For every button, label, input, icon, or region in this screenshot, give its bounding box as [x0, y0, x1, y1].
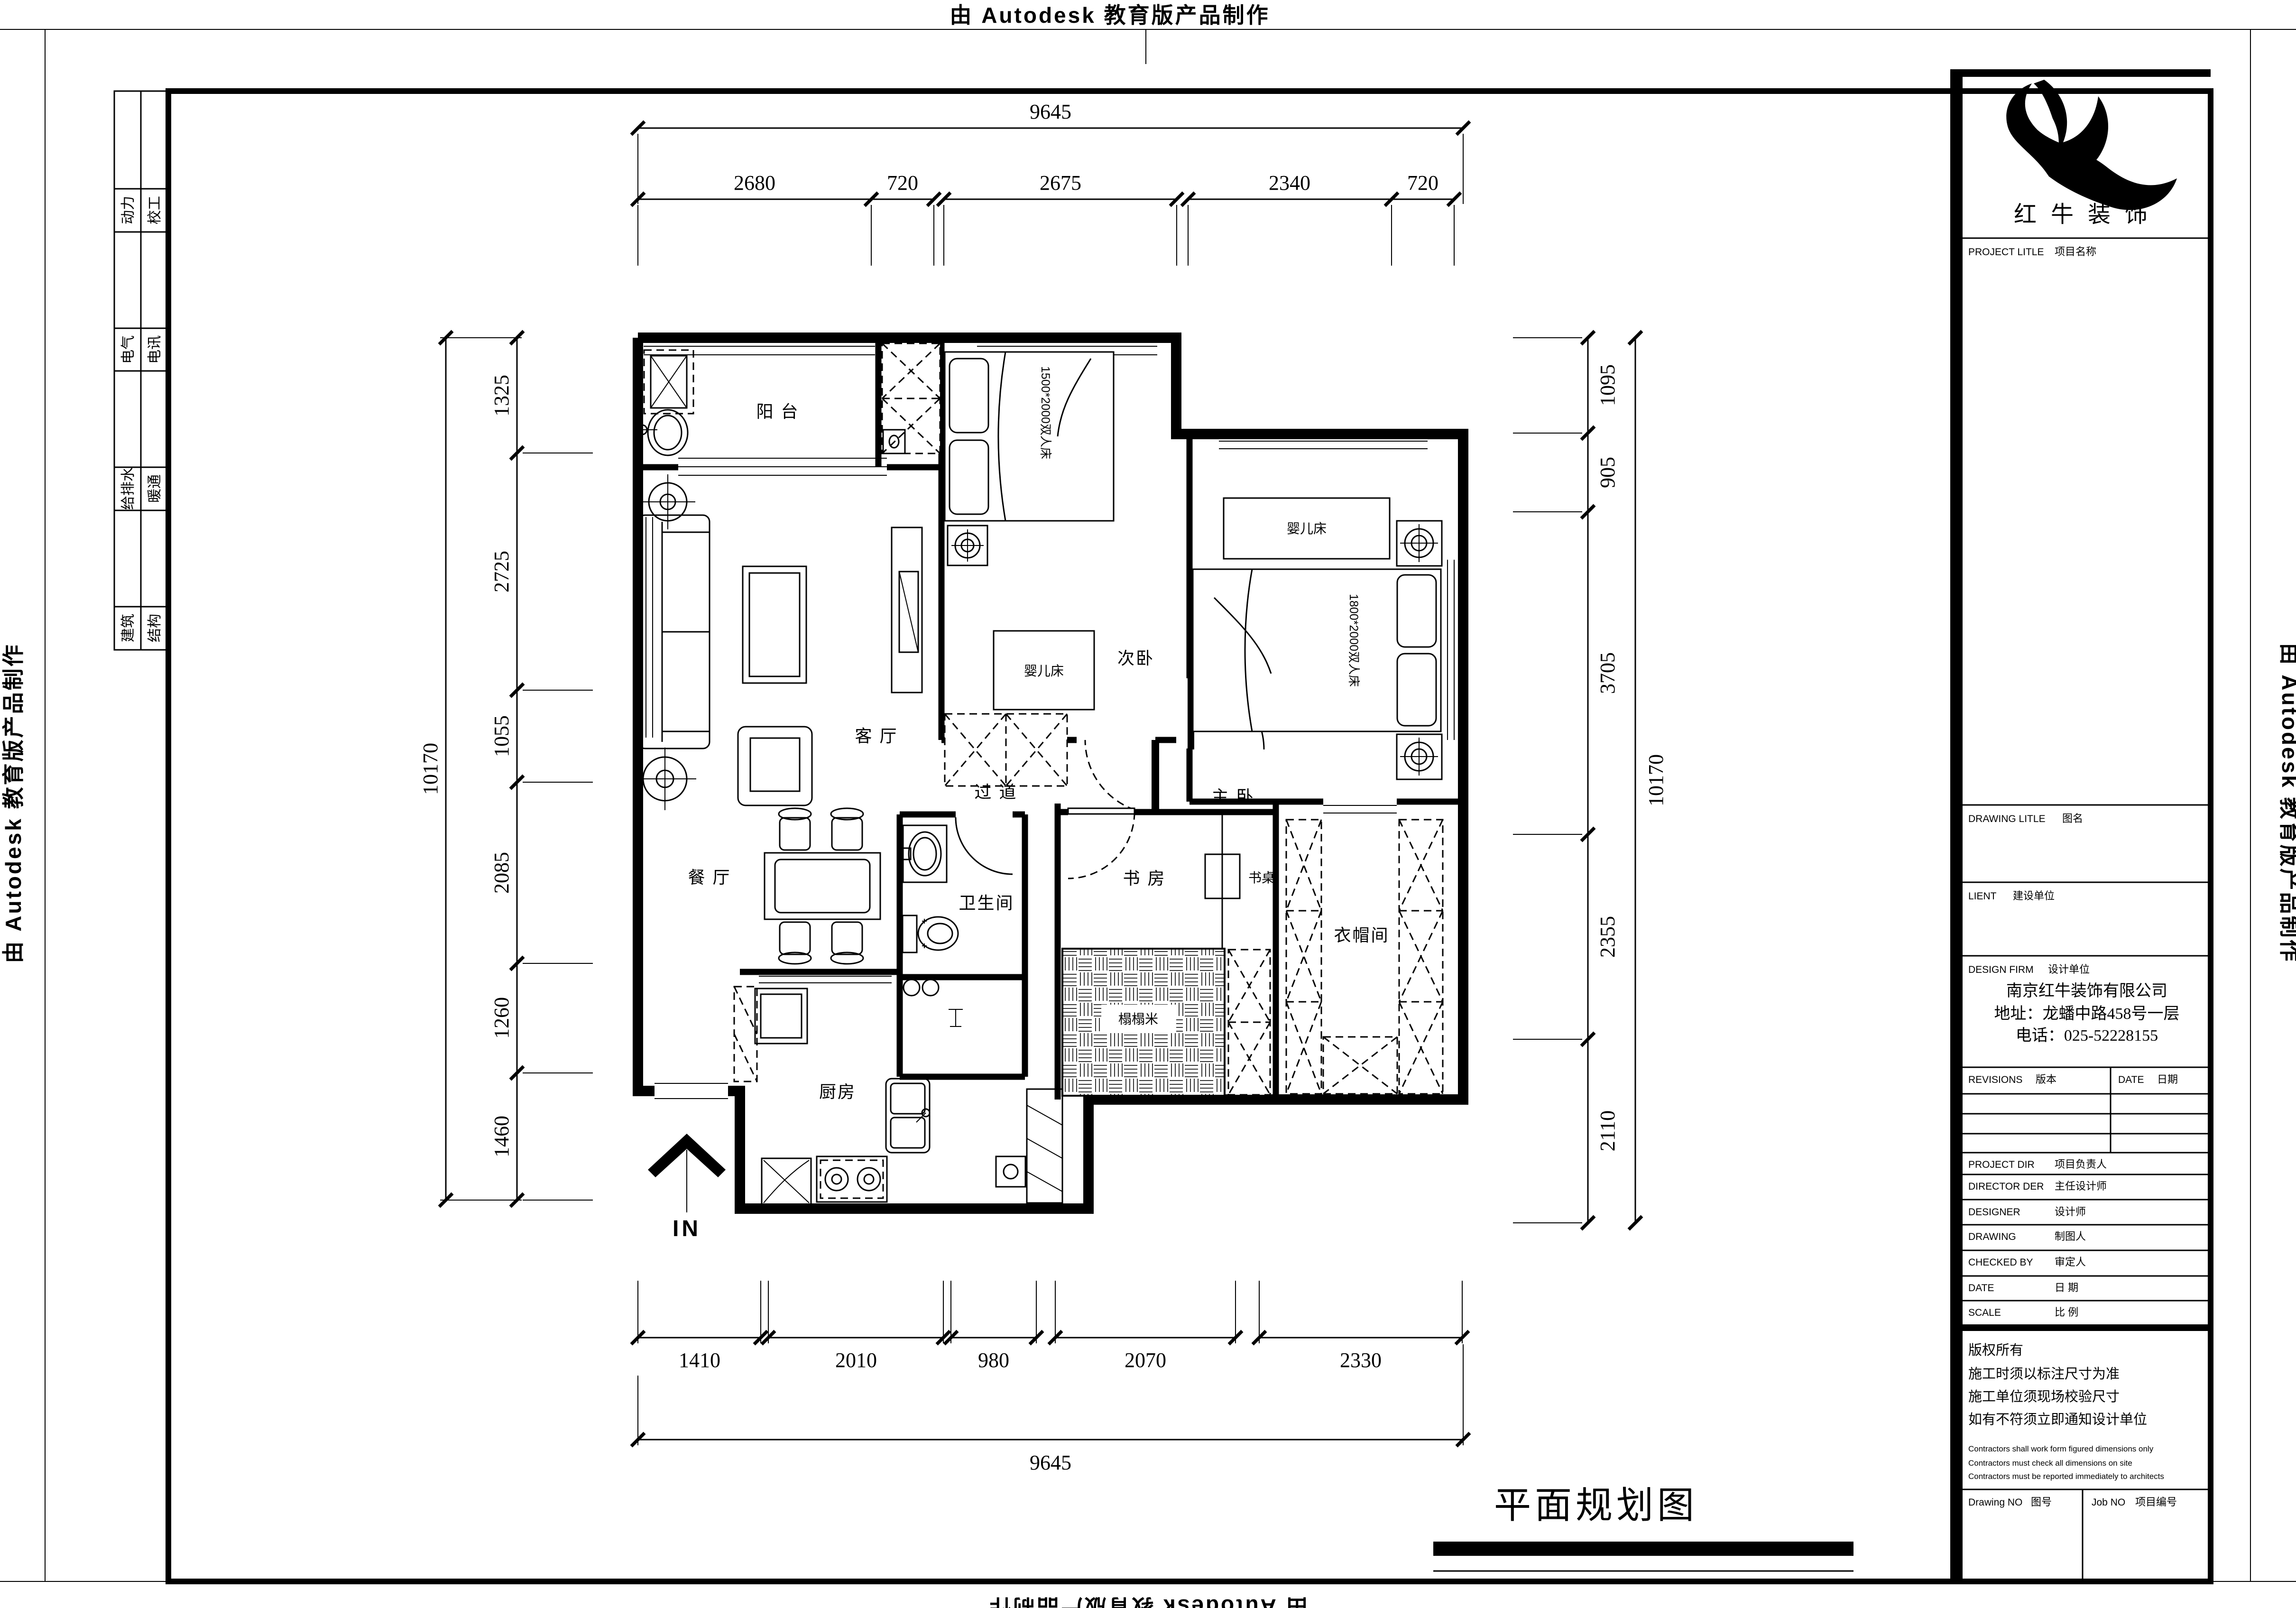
drawing-no-en: Drawing NO	[1968, 1497, 2022, 1508]
dim-top-1: 2680	[734, 171, 775, 194]
room-bath: 卫生间	[959, 893, 1014, 913]
note-cn-3: 如有不符须立即通知设计单位	[1968, 1412, 2147, 1427]
dim-bottom-4: 2070	[1125, 1349, 1166, 1372]
row-checked-en: CHECKED BY	[1968, 1257, 2033, 1268]
drawing-title-en: DRAWING LITLE	[1968, 813, 2046, 824]
date-header-en: DATE	[2118, 1074, 2144, 1085]
closet-furniture	[1286, 820, 1443, 1094]
note-en-1: Contractors shall work form figured dime…	[1968, 1444, 2154, 1453]
room-balcony: 阳 台	[756, 402, 799, 421]
plan-title-underline	[1433, 1542, 1853, 1556]
dim-left-2: 2725	[490, 551, 513, 592]
wardrobe-bedroom2	[945, 714, 1067, 786]
dining-table	[765, 853, 880, 919]
entry-arrow: IN	[648, 1134, 726, 1241]
dim-top-total: 9645	[1030, 100, 1071, 123]
banner-top: 由 Autodesk 教育版产品制作	[950, 3, 1270, 28]
dim-bottom-3: 980	[978, 1349, 1009, 1372]
room-study: 书 房	[1123, 869, 1166, 888]
toilet	[903, 915, 958, 952]
room-dining: 餐 厅	[688, 868, 731, 887]
dim-top-3: 2675	[1040, 171, 1081, 194]
dim-right-4: 2355	[1596, 916, 1619, 958]
note-cn-2: 施工单位须现场校验尺寸	[1968, 1389, 2120, 1405]
nightstand-master-top	[1397, 521, 1442, 566]
dim-top-5: 720	[1407, 171, 1438, 194]
dim-right-1: 1095	[1596, 364, 1619, 406]
stove	[817, 1156, 887, 1202]
row-designer-en: DESIGNER	[1968, 1207, 2020, 1218]
design-firm-en: DESIGN FIRM	[1968, 964, 2034, 975]
entry-label: IN	[673, 1216, 701, 1241]
dim-bottom-1: 1410	[679, 1349, 720, 1372]
title-block: 红牛装饰 PROJECT LITLE 项目名称 DRAWING LITLE 图名…	[1950, 69, 2211, 1581]
crib-bedroom2-label: 婴儿床	[1024, 664, 1064, 678]
dim-bottom-2: 2010	[835, 1349, 877, 1372]
closet-wardrobe-left	[1286, 820, 1321, 1094]
revisions-en: REVISIONS	[1968, 1074, 2022, 1085]
closet-chest	[1323, 1037, 1397, 1094]
bed-bedroom2	[945, 352, 1114, 521]
discipline-label: 暖通	[147, 474, 163, 503]
drawing-no-cn: 图号	[2031, 1496, 2052, 1508]
sofa	[638, 515, 710, 749]
living-furniture	[634, 474, 922, 810]
bathroom-fixtures	[903, 825, 963, 1026]
room-bedroom2: 次卧	[1117, 648, 1154, 668]
dim-top-extensions	[638, 205, 1454, 266]
dim-left-extensions	[523, 453, 593, 1200]
kitchen-box	[996, 1156, 1025, 1187]
room-closet: 衣帽间	[1334, 925, 1389, 945]
row-drawing-en: DRAWING	[1968, 1231, 2016, 1242]
balcony-furniture	[637, 343, 940, 455]
row-scale-cn: 比 例	[2055, 1306, 2078, 1318]
dim-left-5: 1260	[490, 997, 513, 1039]
utility-meters	[904, 980, 963, 1026]
row-project-dir-cn: 项目负责人	[2055, 1158, 2107, 1170]
row-designer-cn: 设计师	[2055, 1206, 2086, 1218]
dim-top-4: 2340	[1269, 171, 1310, 194]
dim-top-2: 720	[887, 171, 918, 194]
bed-master	[1193, 569, 1441, 731]
dimensions-left: 10170 1325 2725 1055 2085 1260 1460	[419, 331, 593, 1207]
drawing-title-cn: 图名	[2062, 813, 2083, 824]
plan-title-text: 平面规划图	[1494, 1484, 1698, 1526]
drawing-sheet: 由 Autodesk 教育版产品制作 由 Autodesk 教育版产品制作 由 …	[0, 0, 2296, 1608]
study-wardrobe	[1228, 950, 1270, 1095]
dim-right-3: 3705	[1596, 652, 1619, 694]
client-cn: 建设单位	[2013, 890, 2055, 902]
plan-title: 平面规划图	[1433, 1484, 1853, 1571]
project-title-en: PROJECT LITLE	[1968, 247, 2044, 258]
banner-right: 由 Autodesk 教育版产品制作	[2278, 643, 2296, 963]
title-block-top-bar	[1950, 69, 2211, 77]
project-title-cn: 项目名称	[2055, 246, 2096, 258]
dim-left-total: 10170	[419, 743, 442, 795]
job-no-en: Job NO	[2092, 1497, 2125, 1508]
dim-bottom-extensions	[638, 1281, 1462, 1343]
banner-left: 由 Autodesk 教育版产品制作	[1, 643, 26, 963]
discipline-label: 结构	[147, 614, 163, 642]
kitchen-counter	[755, 989, 807, 1044]
dim-left-1: 1325	[490, 375, 513, 416]
discipline-label: 电气	[120, 335, 136, 364]
kitchen-sink	[886, 1079, 930, 1153]
tv-cabinet	[892, 527, 922, 693]
duct-shaft	[1027, 1089, 1062, 1203]
bedroom2-furniture: 1500*2000双人床 婴儿床	[945, 352, 1114, 786]
dim-left-6: 1460	[490, 1116, 513, 1157]
row-scale-en: SCALE	[1968, 1307, 2001, 1318]
room-desk: 书桌	[1248, 870, 1275, 885]
company-phone: 电话：025-52228155	[2016, 1026, 2158, 1044]
note-en-2: Contractors must check all dimensions on…	[1968, 1459, 2132, 1468]
design-firm-cn: 设计单位	[2048, 963, 2090, 975]
note-en-3: Contractors must be reported immediately…	[1968, 1472, 2164, 1481]
room-living: 客 厅	[855, 726, 898, 746]
row-checked-cn: 审定人	[2055, 1256, 2086, 1268]
master-furniture: 婴儿床 1800*2000双人床	[1193, 498, 1442, 779]
dim-left-3: 1055	[490, 715, 513, 757]
discipline-label: 给排水	[120, 467, 136, 510]
bed-master-label: 1800*2000双人床	[1347, 594, 1360, 687]
nightstand-master-bottom	[1397, 734, 1442, 779]
note-cn-1: 施工时须以标注尺寸为准	[1968, 1366, 2120, 1382]
slider-cabinet	[734, 987, 757, 1081]
dim-left-4: 2085	[490, 852, 513, 894]
room-kitchen: 厨房	[819, 1082, 856, 1101]
study-furniture	[1062, 812, 1270, 1096]
company-name: 南京红牛装饰有限公司	[2006, 982, 2167, 1000]
crib-master-label: 婴儿床	[1287, 521, 1327, 536]
closet-wardrobe-right	[1399, 820, 1443, 1094]
dim-right-5: 2110	[1596, 1110, 1619, 1151]
kitchen-fixtures	[755, 989, 1062, 1205]
room-master: 主 卧	[1211, 787, 1254, 806]
row-date-en: DATE	[1968, 1283, 1994, 1294]
job-no-cn: 项目编号	[2135, 1496, 2177, 1508]
date-header-cn: 日期	[2157, 1073, 2178, 1085]
floor-lamp-top	[640, 474, 695, 529]
discipline-label: 校工	[147, 196, 163, 224]
dim-right-2: 905	[1596, 457, 1619, 488]
nightstand-bedroom2	[948, 526, 987, 565]
company-address: 地址：龙蟠中路458号一层	[1994, 1005, 2180, 1023]
row-project-dir-en: PROJECT DIR	[1968, 1159, 2035, 1170]
discipline-label: 电讯	[147, 335, 163, 364]
discipline-label: 动力	[120, 196, 136, 224]
dimensions-top: 9645 2680 720 2675 2340 720	[631, 100, 1470, 266]
corner-cabinet	[762, 1158, 811, 1205]
title-block-left-bar	[1950, 69, 1963, 1581]
row-date-cn: 日 期	[2055, 1282, 2078, 1294]
client-en: LIENT	[1968, 891, 1997, 902]
copyright: 版权所有	[1968, 1342, 2023, 1358]
dim-bottom-5: 2330	[1340, 1349, 1382, 1372]
discipline-table: 动力 校工 电气 电讯 给排水 暖通 建筑 结构	[114, 91, 167, 650]
dining-chairs	[779, 808, 863, 964]
coffee-table	[743, 566, 806, 683]
dim-right-extensions	[1513, 338, 1582, 1223]
room-corridor: 过 道	[974, 782, 1017, 802]
logo-text: 红牛装饰	[2014, 202, 2162, 227]
dimensions-bottom: 1410 2010 980 2070 2330 9645	[631, 1281, 1470, 1474]
bath-sink	[903, 825, 947, 882]
bed-bedroom2-label: 1500*2000双人床	[1039, 366, 1052, 459]
row-drawing-cn: 制图人	[2055, 1230, 2086, 1242]
balcony-cabinet	[882, 343, 940, 453]
dimensions-right: 1095 905 3705 2355 2110 10170	[1513, 331, 1668, 1229]
room-tatami: 榻榻米	[1118, 1012, 1158, 1026]
armchair	[738, 727, 812, 805]
row-director-cn: 主任设计师	[2055, 1180, 2107, 1192]
dim-bottom-total: 9645	[1030, 1451, 1071, 1474]
discipline-label: 建筑	[120, 614, 136, 642]
banner-bottom: 由 Autodesk 教育版产品制作	[987, 1595, 1308, 1608]
revisions-cn: 版本	[2036, 1073, 2056, 1085]
dim-right-total: 10170	[1644, 754, 1668, 806]
row-director-en: DIRECTOR DER	[1968, 1181, 2044, 1192]
